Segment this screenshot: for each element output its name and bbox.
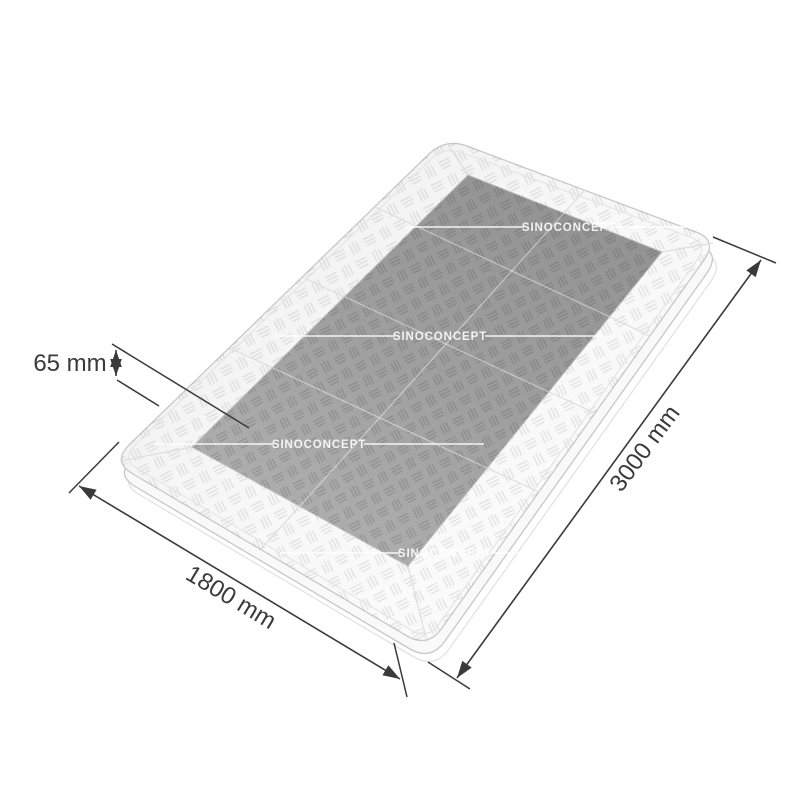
watermark-text: SINOCONCEPT — [393, 331, 487, 343]
speed-table-illustration: SINOCONCEPT SINOCONCEPT SINOCONCEPT SINO… — [0, 0, 790, 790]
height-extension-line-bottom — [117, 380, 159, 406]
length-extension-line-top — [713, 237, 776, 263]
length-extension-line-bottom — [428, 662, 470, 689]
product-diagram: SINOCONCEPT SINOCONCEPT SINOCONCEPT SINO… — [0, 0, 790, 790]
watermark-text: SINOCONCEPT — [522, 222, 616, 234]
watermark-text: SINOCONCEPT — [398, 548, 492, 560]
watermark-text: SINOCONCEPT — [272, 439, 366, 451]
height-label: 65 mm — [33, 350, 106, 377]
width-extension-line-left — [69, 442, 119, 493]
